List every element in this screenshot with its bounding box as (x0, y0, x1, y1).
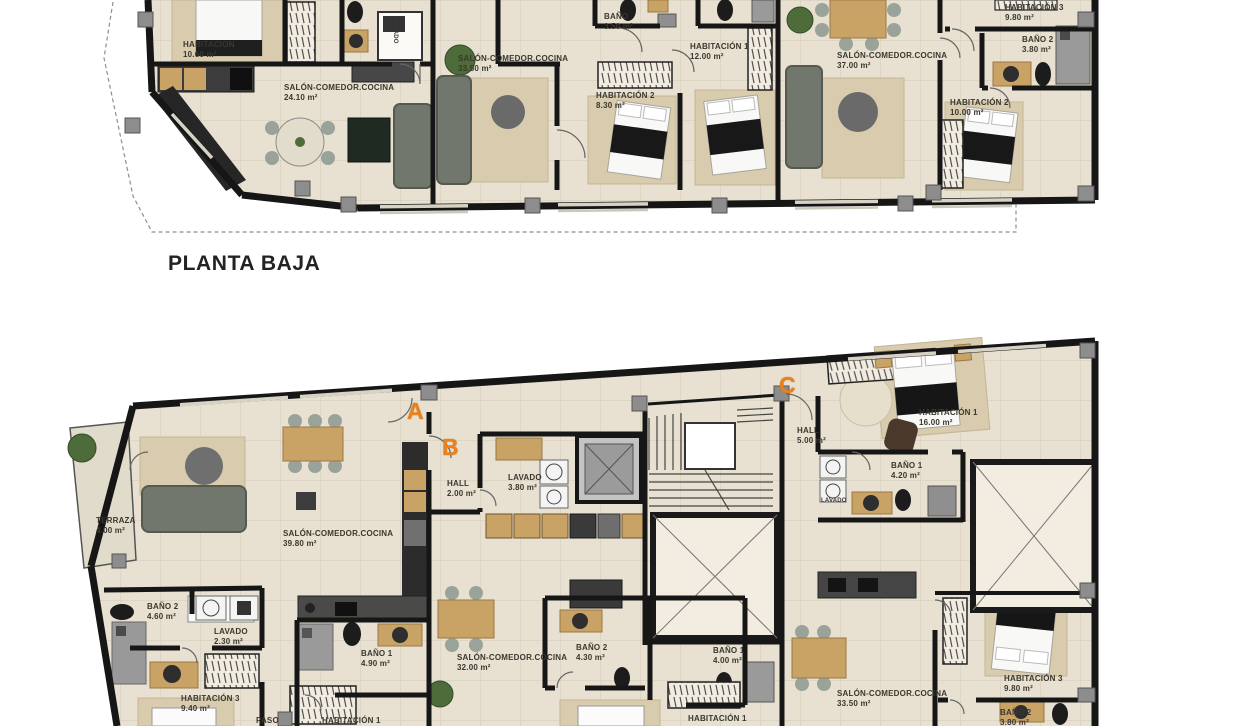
room-label: HABITACION10.60 m² (183, 40, 235, 61)
room-label: LAVADO (821, 498, 847, 506)
room-label: LAVADO3.80 m² (508, 473, 542, 494)
room-label: SALÓN-COMEDOR.COCINA33.50 m² (458, 54, 568, 75)
room-label: HABITACIÓN 1 (688, 714, 747, 724)
sofa-apt3 (786, 66, 822, 168)
room-label: LAVADO2.30 m² (214, 627, 248, 648)
room-label: PASO (256, 716, 279, 726)
room-label: HABITACIÓN 1 (322, 716, 381, 726)
bed-unit-b-hab1 (578, 706, 644, 726)
floor-plan-sheet: PLANTA BAJA HABITACION10.60 m² BAÑO3.50 … (0, 0, 1240, 726)
room-label: BAÑO 23.80 m² (1022, 35, 1053, 56)
room-label: BAÑO 14.20 m² (891, 461, 922, 482)
wardrobe (748, 28, 772, 90)
room-label: HABITACIÓN 28.30 m² (596, 91, 655, 112)
coffee-table (348, 118, 390, 162)
room-label: BAÑO3.50 m² (604, 12, 633, 33)
wardrobe (598, 62, 672, 88)
room-label: BAÑO 14.90 m² (361, 649, 392, 670)
wardrobe (943, 598, 967, 664)
plan-title-planta-baja: PLANTA BAJA (168, 252, 320, 276)
room-label: HALL5.00 m² (797, 426, 826, 447)
bed-apt2-hab2 (607, 100, 670, 179)
plan-bottom-floor (68, 337, 1095, 726)
wardrobe (205, 654, 259, 688)
room-label: LAVADO (390, 18, 398, 44)
room-label: HABITACIÓN 112.00 m² (690, 42, 749, 63)
dining-table-apt1 (265, 118, 335, 166)
unit-marker-b: B (442, 434, 459, 461)
plant (68, 434, 96, 462)
room-label: HALL2.00 m² (447, 479, 476, 500)
room-label: HABITACIÓN 39.40 m² (181, 694, 240, 715)
room-label: SALÓN-COMEDOR.COCINA32.00 m² (457, 653, 567, 674)
stair-void (685, 423, 735, 469)
room-label: HABITACIÓN 39.80 m² (1004, 674, 1063, 695)
room-label: SALÓN-COMEDOR.COCINA33.50 m² (837, 689, 947, 710)
room-label: SALÓN-COMEDOR.COCINA24.10 m² (284, 83, 394, 104)
round-rug (491, 95, 525, 129)
patio-center (653, 515, 777, 638)
dining-table-unit-a (283, 414, 343, 473)
round-rug (185, 447, 223, 485)
round-rug (838, 92, 878, 132)
wardrobe (941, 120, 963, 188)
unit-marker-a: A (407, 398, 424, 425)
room-label: HABITACIÓN 39.80 m² (1005, 3, 1064, 24)
kitchen-island (296, 492, 316, 510)
plan-top-floor (104, 0, 1095, 232)
wardrobe (287, 2, 315, 62)
room-label: BAÑO 14.00 m² (713, 646, 744, 667)
room-label: BAÑO 24.30 m² (576, 643, 607, 664)
room-label: TERRAZA4.00 m² (96, 516, 136, 537)
sofa-apt2 (437, 76, 471, 184)
unit-marker-c: C (779, 372, 796, 399)
room-label: BAÑO 24.60 m² (147, 602, 178, 623)
room-label: SALÓN-COMEDOR.COCINA39.80 m² (283, 529, 393, 550)
room-label: BAÑO 23.80 m² (1000, 708, 1031, 726)
kitchen-unit-c (818, 572, 916, 598)
sofa-unit-a (142, 486, 246, 532)
elevator (577, 436, 641, 502)
bed-apt2-hab1 (704, 95, 767, 175)
sofa-apt1 (394, 104, 432, 188)
patio-right (973, 462, 1095, 610)
room-label: SALÓN-COMEDOR.COCINA37.00 m² (837, 51, 947, 72)
room-label: HABITACIÓN 116.00 m² (919, 408, 978, 429)
plant (787, 7, 813, 33)
room-label: HABITACIÓN 210.00 m² (950, 98, 1009, 119)
